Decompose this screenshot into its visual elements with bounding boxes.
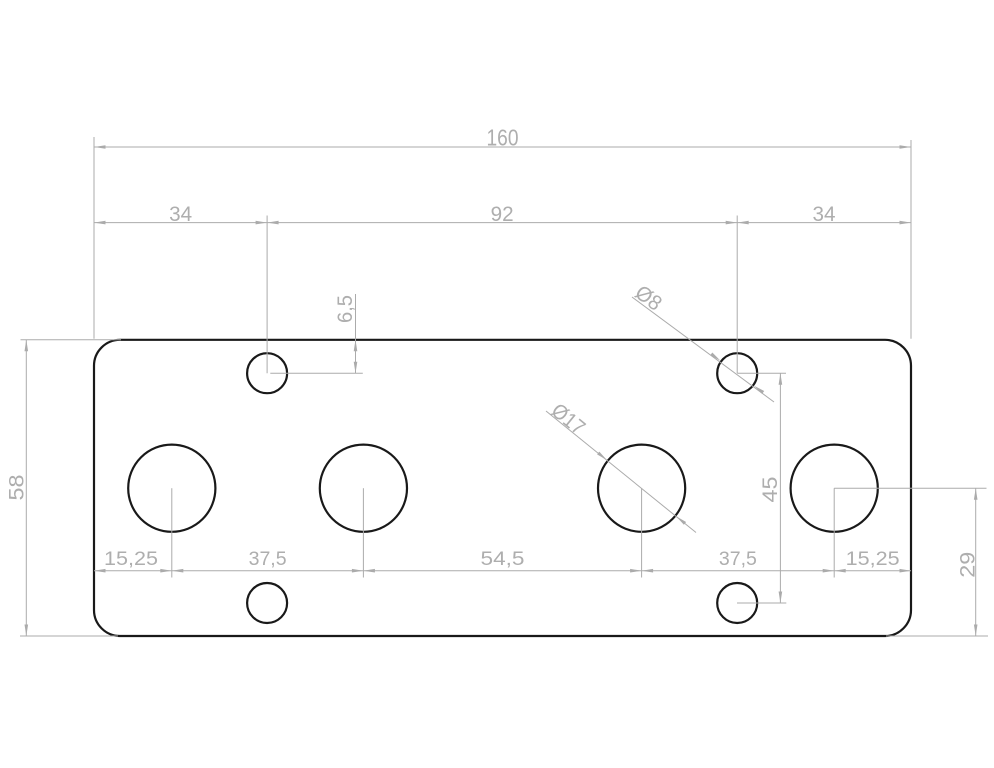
- svg-text:34: 34: [169, 202, 192, 226]
- svg-text:37,5: 37,5: [719, 548, 757, 570]
- svg-text:45: 45: [759, 477, 782, 503]
- svg-text:58: 58: [5, 474, 29, 500]
- svg-text:15,25: 15,25: [104, 548, 158, 570]
- svg-text:54,5: 54,5: [481, 548, 525, 570]
- svg-text:92: 92: [491, 202, 514, 226]
- svg-text:Ø17: Ø17: [547, 399, 589, 440]
- svg-text:15,25: 15,25: [846, 548, 900, 570]
- svg-text:6,5: 6,5: [334, 295, 357, 323]
- svg-text:160: 160: [487, 124, 519, 150]
- svg-text:34: 34: [813, 202, 836, 226]
- svg-text:37,5: 37,5: [249, 548, 287, 570]
- svg-text:Ø8: Ø8: [631, 281, 666, 316]
- svg-text:29: 29: [957, 552, 980, 578]
